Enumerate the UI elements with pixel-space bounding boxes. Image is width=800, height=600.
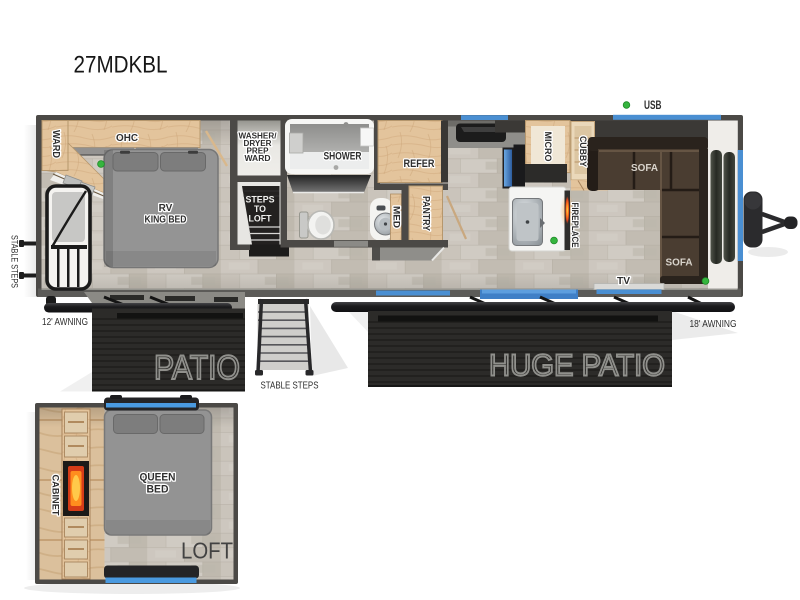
svg-text:REFER: REFER xyxy=(404,158,435,170)
svg-text:PANTRY: PANTRY xyxy=(420,196,432,231)
svg-text:TV: TV xyxy=(617,276,630,287)
svg-text:OHC: OHC xyxy=(116,133,138,144)
svg-text:WARD: WARD xyxy=(50,130,61,158)
svg-text:SHOWER: SHOWER xyxy=(324,151,362,163)
svg-text:CABINET: CABINET xyxy=(50,475,61,516)
svg-text:BED: BED xyxy=(147,484,169,496)
svg-text:STABLE STEPS: STABLE STEPS xyxy=(9,235,20,288)
svg-text:12' AWNING: 12' AWNING xyxy=(42,317,88,328)
svg-text:MICRO: MICRO xyxy=(542,132,553,162)
svg-text:SOFA: SOFA xyxy=(631,163,658,174)
svg-text:SOFA: SOFA xyxy=(666,258,693,269)
svg-text:KING BED: KING BED xyxy=(145,215,187,226)
svg-text:PATIO: PATIO xyxy=(154,349,240,387)
svg-text:18' AWNING: 18' AWNING xyxy=(690,319,737,330)
svg-text:USB: USB xyxy=(644,100,662,112)
svg-text:RV: RV xyxy=(159,203,173,214)
svg-text:STABLE STEPS: STABLE STEPS xyxy=(261,380,319,392)
svg-text:WARD: WARD xyxy=(245,154,271,163)
svg-text:LOFT: LOFT xyxy=(249,214,272,224)
svg-text:TO: TO xyxy=(254,204,266,214)
svg-text:STEPS: STEPS xyxy=(246,195,275,205)
svg-text:CUBBY: CUBBY xyxy=(577,136,588,168)
svg-text:FIREPLACE: FIREPLACE xyxy=(569,203,580,248)
svg-text:QUEEN: QUEEN xyxy=(140,472,176,484)
svg-text:27MDKBL: 27MDKBL xyxy=(74,52,168,79)
svg-text:MED: MED xyxy=(391,206,402,228)
svg-text:LOFT: LOFT xyxy=(181,538,233,564)
svg-text:HUGE PATIO: HUGE PATIO xyxy=(489,348,665,383)
